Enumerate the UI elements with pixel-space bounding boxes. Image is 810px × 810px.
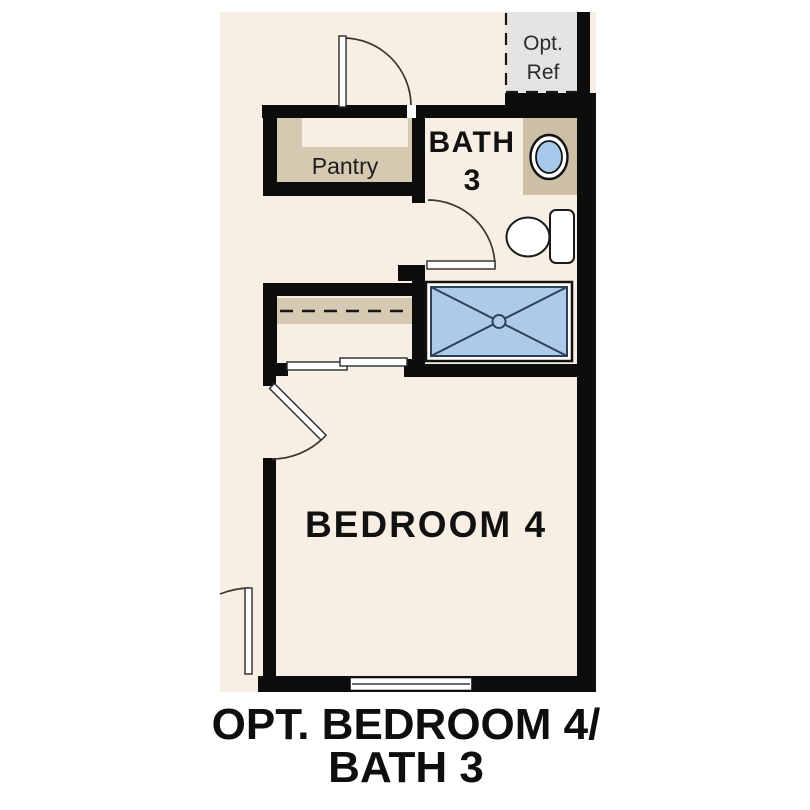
lower-hall-door-leaf: [245, 588, 252, 674]
toilet-bowl: [507, 218, 550, 257]
bathroom-sink: [531, 135, 568, 179]
shower-drain: [493, 315, 506, 328]
wall-bedroom-left-main: [263, 458, 276, 676]
toilet-tank: [550, 210, 574, 263]
opt-ref-label-line2: Ref: [527, 61, 560, 84]
floorplan-canvas: Opt. Ref Pantry BATH 3 BEDROOM 4 OPT. BE…: [0, 0, 810, 810]
sink-basin: [536, 141, 562, 173]
plan-title-line1: OPT. BEDROOM 4/: [212, 700, 601, 749]
floor-plan: Opt. Ref Pantry BATH 3 BEDROOM 4 OPT. BE…: [0, 0, 810, 810]
wall-under-refrigerator: [505, 93, 596, 107]
pantry-label: Pantry: [312, 153, 379, 179]
pantry-floor-notch: [302, 118, 408, 147]
plan-title-line2: BATH 3: [328, 743, 484, 792]
bath-label-line2: 3: [464, 164, 481, 197]
bedroom-label: BEDROOM 4: [305, 504, 547, 545]
door-stop-notch: [407, 105, 416, 118]
bath-door-leaf: [427, 261, 495, 269]
bath-label-line1: BATH: [428, 126, 515, 159]
wall-top-main: [262, 105, 578, 118]
wall-closet-left: [263, 283, 277, 376]
opt-ref-label-line1: Opt.: [523, 32, 563, 55]
window: [350, 678, 472, 691]
wall-right-main: [577, 105, 596, 692]
wall-bath-left-upper: [412, 118, 425, 203]
wall-bedroom-left-stub: [263, 364, 276, 386]
closet-shelf-and-rod: [277, 298, 413, 324]
shower: [426, 282, 572, 361]
bypass-door-panel-back: [340, 358, 407, 366]
wall-right-upper: [577, 12, 590, 107]
wall-pantry-bottom: [263, 182, 413, 196]
wall-closet-top: [263, 283, 413, 296]
wall-bedroom-top: [404, 364, 596, 377]
bypass-door-panel-front: [287, 362, 347, 370]
hall-door-leaf: [339, 36, 346, 107]
